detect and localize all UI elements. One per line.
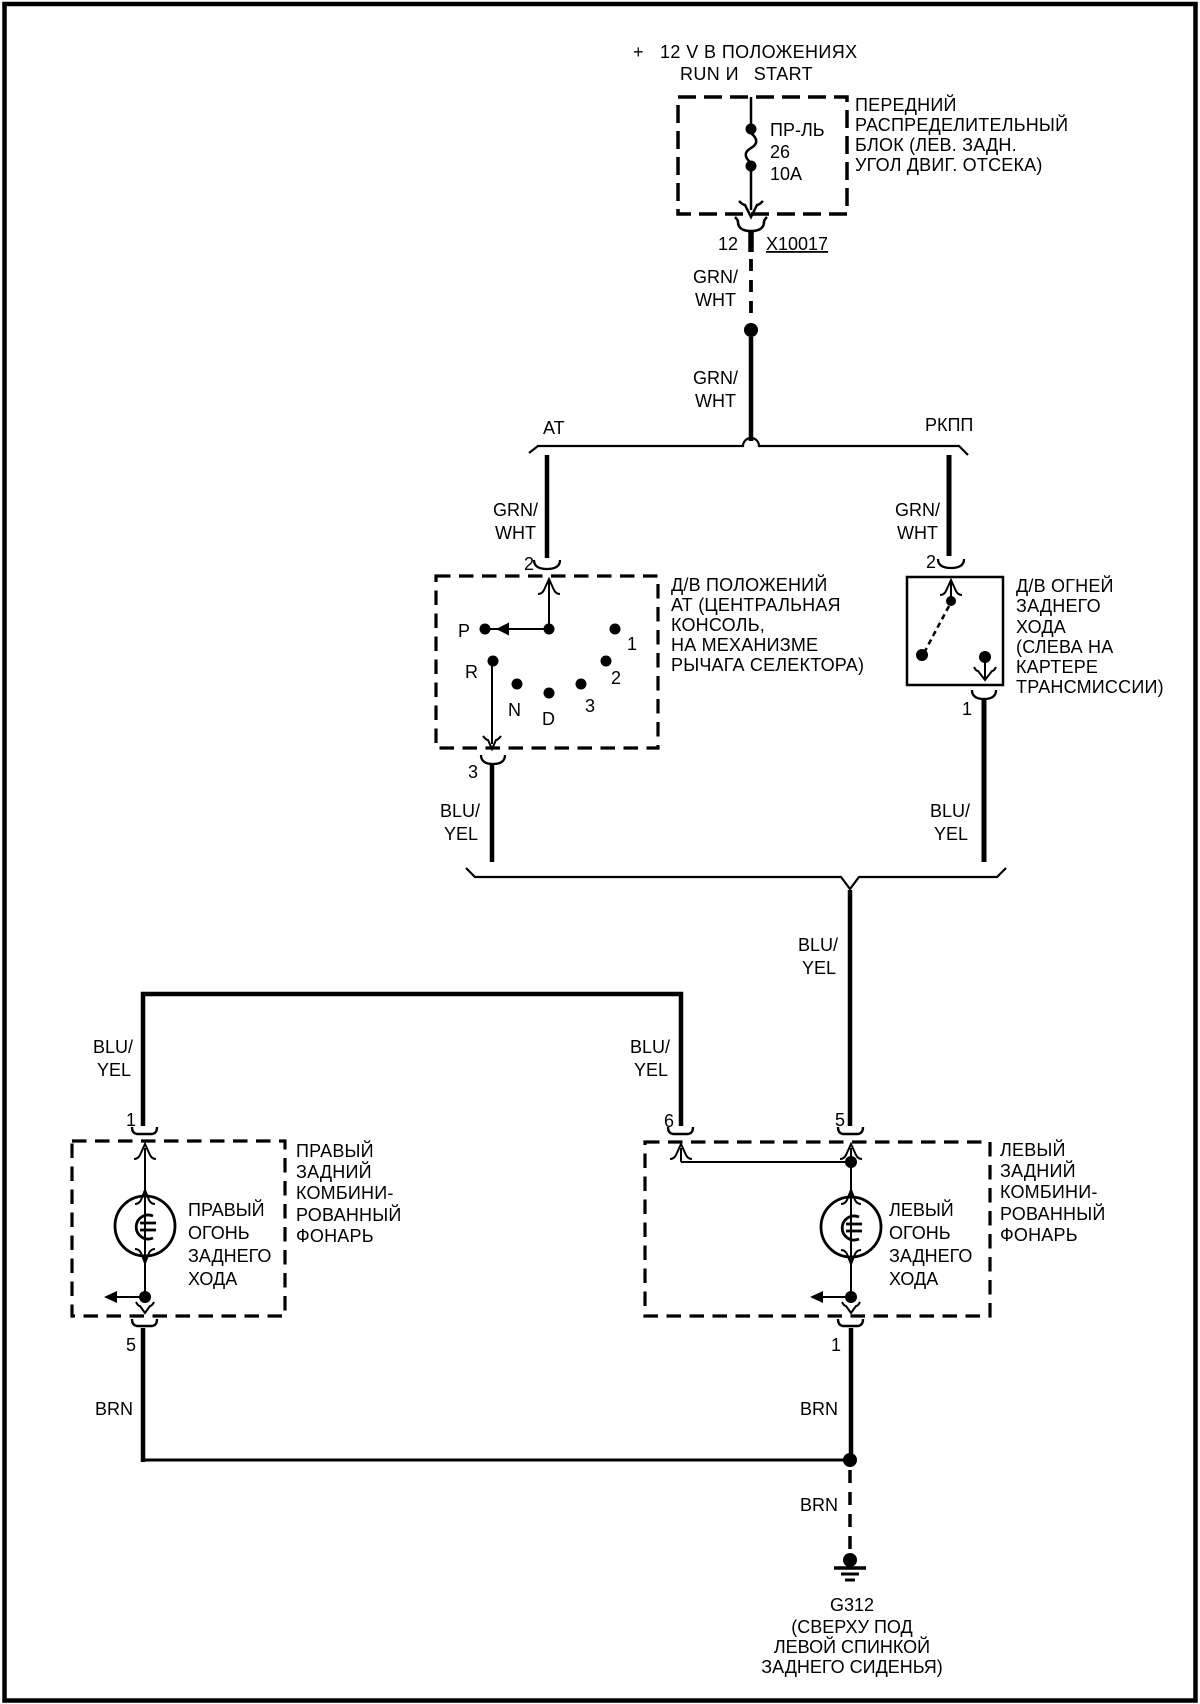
svg-text:КОНСОЛЬ,: КОНСОЛЬ, (671, 615, 765, 635)
svg-text:BLU/: BLU/ (630, 1037, 670, 1057)
svg-text:GRN/: GRN/ (895, 500, 940, 520)
svg-text:26: 26 (770, 142, 790, 162)
svg-text:(СВЕРХУ ПОД: (СВЕРХУ ПОД (791, 1617, 912, 1637)
svg-text:ЛЕВОЙ СПИНКОЙ: ЛЕВОЙ СПИНКОЙ (774, 1636, 930, 1657)
svg-text:1: 1 (831, 1335, 841, 1355)
svg-text:R: R (465, 662, 478, 682)
svg-text:ХОДА: ХОДА (889, 1269, 938, 1289)
svg-text:BLU/: BLU/ (798, 935, 838, 955)
svg-text:P: P (458, 621, 470, 641)
svg-text:5: 5 (835, 1110, 845, 1130)
svg-text:2: 2 (524, 554, 534, 574)
svg-text:+: + (633, 42, 644, 62)
svg-text:WHT: WHT (495, 523, 536, 543)
svg-text:3: 3 (585, 696, 595, 716)
svg-text:ФОНАРЬ: ФОНАРЬ (296, 1226, 374, 1246)
svg-text:РЫЧАГА СЕЛЕКТОРА): РЫЧАГА СЕЛЕКТОРА) (671, 655, 864, 675)
svg-text:N: N (508, 700, 521, 720)
svg-text:ПРАВЫЙ: ПРАВЫЙ (188, 1199, 265, 1220)
svg-text:G312: G312 (830, 1595, 874, 1615)
svg-text:ЛЕВЫЙ: ЛЕВЫЙ (889, 1199, 954, 1220)
svg-text:ЗАДНЕГО: ЗАДНЕГО (889, 1246, 972, 1266)
svg-text:WHT: WHT (695, 290, 736, 310)
svg-text:3: 3 (468, 762, 478, 782)
svg-text:ЛЕВЫЙ: ЛЕВЫЙ (1000, 1139, 1066, 1160)
svg-text:BLU/: BLU/ (93, 1037, 133, 1057)
svg-text:РОВАННЫЙ: РОВАННЫЙ (296, 1204, 402, 1225)
svg-text:БЛОК (ЛЕВ. ЗАДН.: БЛОК (ЛЕВ. ЗАДН. (855, 135, 1017, 155)
svg-text:РОВАННЫЙ: РОВАННЫЙ (1000, 1203, 1106, 1224)
svg-text:РКПП: РКПП (925, 415, 973, 435)
svg-text:D: D (542, 709, 555, 729)
svg-text:BRN: BRN (800, 1399, 838, 1419)
svg-text:GRN/: GRN/ (693, 368, 738, 388)
svg-text:КАРТЕРЕ: КАРТЕРЕ (1016, 657, 1098, 677)
svg-text:YEL: YEL (97, 1060, 131, 1080)
svg-text:WHT: WHT (695, 391, 736, 411)
svg-text:ЗАДНЕГО: ЗАДНЕГО (1016, 596, 1101, 616)
svg-text:BRN: BRN (95, 1399, 133, 1419)
svg-text:ХОДА: ХОДА (1016, 617, 1066, 637)
svg-text:ТРАНСМИССИИ): ТРАНСМИССИИ) (1016, 677, 1164, 697)
svg-text:ПРАВЫЙ: ПРАВЫЙ (296, 1140, 374, 1161)
svg-text:BRN: BRN (800, 1495, 838, 1515)
svg-text:12: 12 (718, 234, 738, 254)
svg-text:BLU/: BLU/ (440, 801, 480, 821)
svg-text:ФОНАРЬ: ФОНАРЬ (1000, 1225, 1078, 1245)
svg-text:GRN/: GRN/ (693, 267, 738, 287)
svg-text:Д/В ПОЛОЖЕНИЙ: Д/В ПОЛОЖЕНИЙ (671, 574, 827, 595)
svg-text:YEL: YEL (934, 824, 968, 844)
svg-text:1: 1 (962, 699, 972, 719)
svg-text:Д/В ОГНЕЙ: Д/В ОГНЕЙ (1016, 575, 1114, 596)
svg-text:5: 5 (126, 1335, 136, 1355)
svg-text:WHT: WHT (897, 523, 938, 543)
svg-text:ХОДА: ХОДА (188, 1269, 237, 1289)
svg-text:ПР-ЛЬ: ПР-ЛЬ (770, 120, 825, 140)
svg-text:ОГОНЬ: ОГОНЬ (889, 1223, 951, 1243)
svg-text:12 V В ПОЛОЖЕНИЯХ: 12 V В ПОЛОЖЕНИЯХ (660, 42, 858, 62)
svg-text:RUN И START: RUN И START (680, 64, 813, 84)
svg-text:YEL: YEL (634, 1060, 668, 1080)
svg-text:ЗАДНЕГО СИДЕНЬЯ): ЗАДНЕГО СИДЕНЬЯ) (761, 1657, 943, 1677)
svg-text:2: 2 (926, 552, 936, 572)
svg-text:ЗАДНИЙ: ЗАДНИЙ (1000, 1160, 1076, 1181)
svg-text:КОМБИНИ-: КОМБИНИ- (1000, 1182, 1098, 1202)
svg-text:ПЕРЕДНИЙ: ПЕРЕДНИЙ (855, 94, 957, 115)
svg-text:ЗАДНЕГО: ЗАДНЕГО (188, 1246, 271, 1266)
svg-text:ЗАДНИЙ: ЗАДНИЙ (296, 1161, 372, 1182)
svg-text:YEL: YEL (444, 824, 478, 844)
svg-text:КОМБИНИ-: КОМБИНИ- (296, 1183, 394, 1203)
svg-text:AT: AT (543, 418, 565, 438)
svg-text:1: 1 (627, 634, 637, 654)
svg-text:ОГОНЬ: ОГОНЬ (188, 1223, 250, 1243)
svg-text:GRN/: GRN/ (493, 500, 538, 520)
svg-text:10А: 10А (770, 164, 802, 184)
svg-text:РАСПРЕДЕЛИТЕЛЬНЫЙ: РАСПРЕДЕЛИТЕЛЬНЫЙ (855, 114, 1068, 135)
svg-text:BLU/: BLU/ (930, 801, 970, 821)
svg-text:НА МЕХАНИЗМЕ: НА МЕХАНИЗМЕ (671, 635, 818, 655)
svg-text:YEL: YEL (802, 958, 836, 978)
svg-text:X10017: X10017 (766, 234, 828, 254)
svg-text:2: 2 (611, 668, 621, 688)
svg-text:УГОЛ ДВИГ. ОТСЕКА): УГОЛ ДВИГ. ОТСЕКА) (855, 155, 1043, 175)
svg-text:АТ (ЦЕНТРАЛЬНАЯ: АТ (ЦЕНТРАЛЬНАЯ (671, 595, 841, 615)
svg-text:(СЛЕВА НА: (СЛЕВА НА (1016, 637, 1113, 657)
